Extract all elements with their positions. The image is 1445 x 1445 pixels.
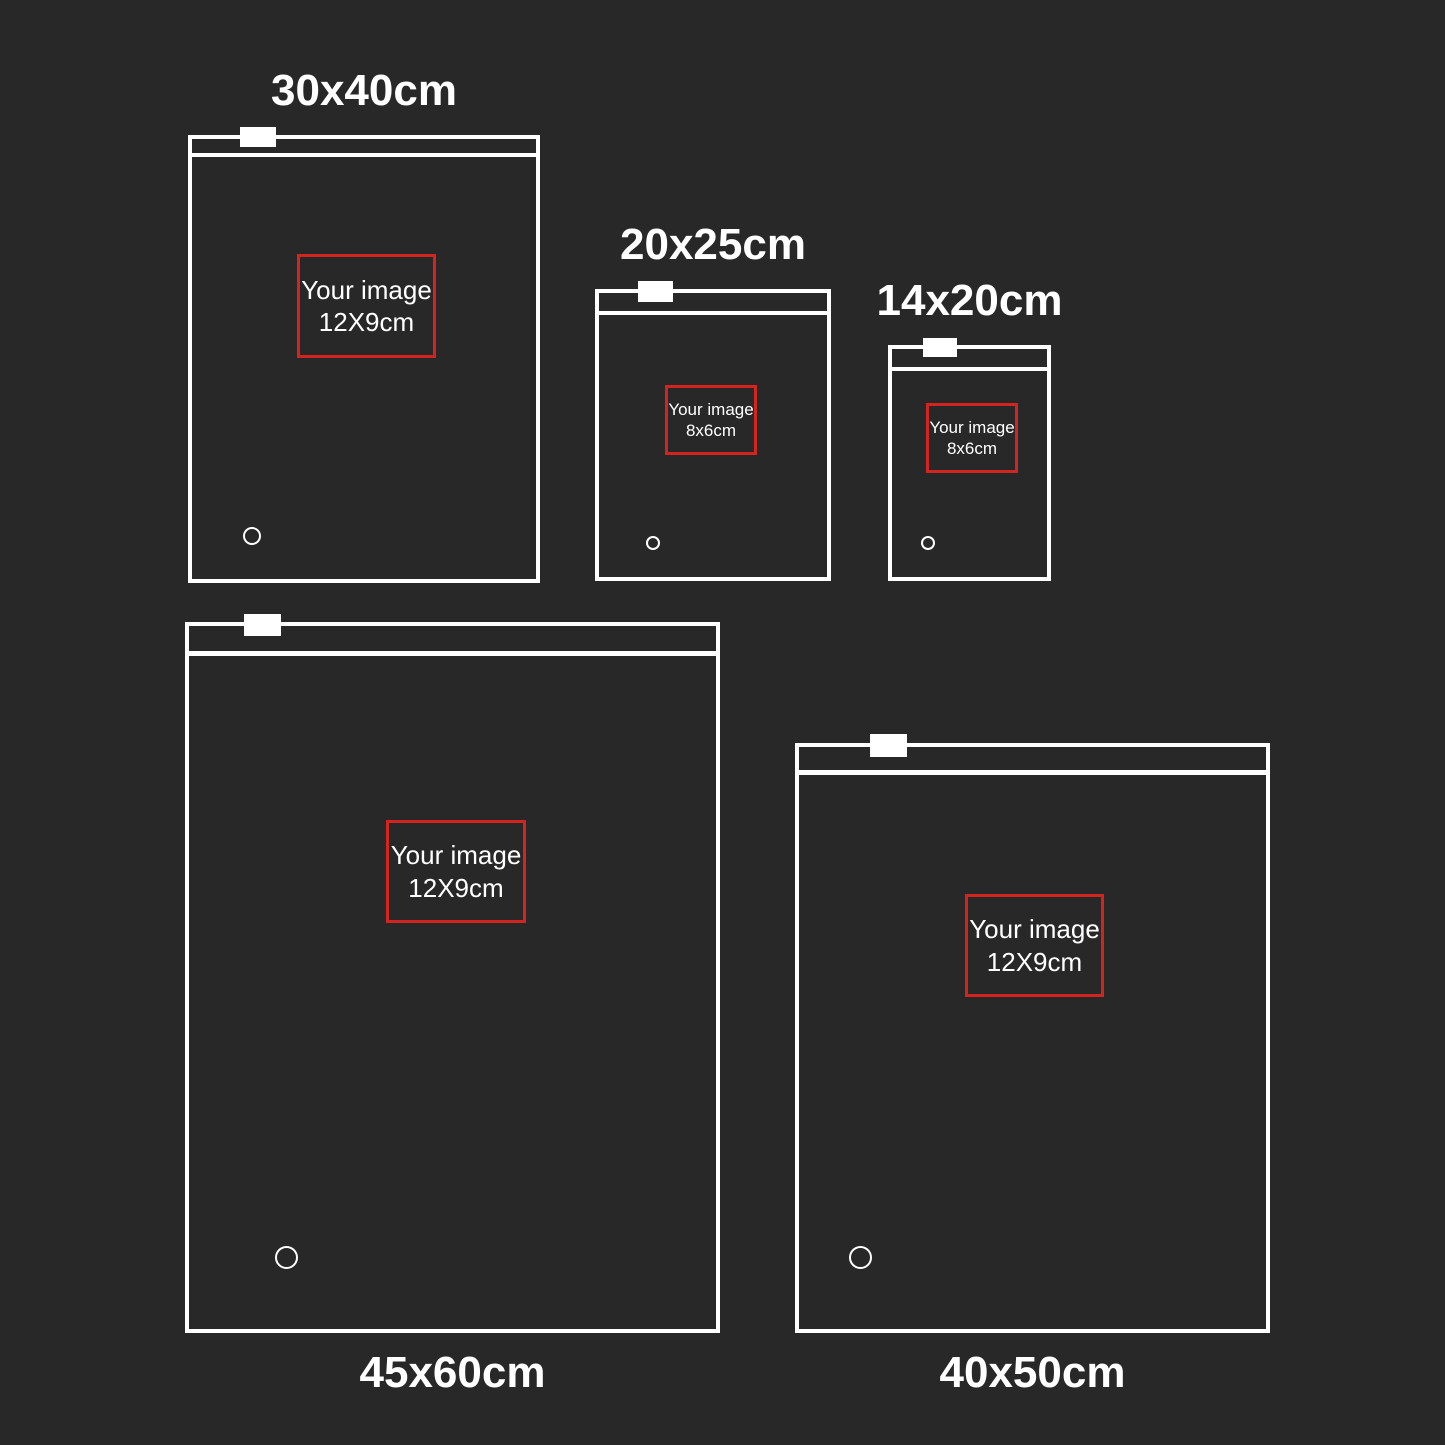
image-placeholder-box: Your image 12X9cm — [386, 820, 526, 923]
hang-hole-icon — [243, 527, 261, 545]
size-label: 45x60cm — [360, 1351, 546, 1395]
image-placeholder-line1: Your image — [391, 839, 522, 872]
zipper-track-line — [891, 367, 1048, 371]
image-placeholder-box: Your image 12X9cm — [297, 254, 436, 358]
bag-20x25cm: 20x25cm Your image 8x6cm — [595, 289, 831, 581]
image-placeholder-size: 8x6cm — [686, 420, 736, 441]
size-label: 40x50cm — [940, 1351, 1126, 1395]
image-placeholder-size: 8x6cm — [947, 438, 997, 459]
zipper-slider-icon — [870, 734, 907, 757]
hang-hole-icon — [921, 536, 935, 550]
image-placeholder-line1: Your image — [668, 399, 753, 420]
zipper-slider-icon — [923, 338, 957, 357]
image-placeholder-line1: Your image — [301, 274, 432, 307]
zipper-slider-icon — [240, 127, 276, 147]
image-placeholder-size: 12X9cm — [987, 946, 1082, 979]
hang-hole-icon — [275, 1246, 298, 1269]
hang-hole-icon — [646, 536, 660, 550]
image-placeholder-box: Your image 8x6cm — [926, 403, 1018, 473]
hang-hole-icon — [849, 1246, 872, 1269]
image-placeholder-size: 12X9cm — [319, 306, 414, 339]
image-placeholder-line1: Your image — [929, 417, 1014, 438]
size-chart-canvas: 30x40cm Your image 12X9cm 20x25cm Your i… — [0, 0, 1445, 1445]
bag-45x60cm: 45x60cm Your image 12X9cm — [185, 622, 720, 1333]
bag-14x20cm: 14x20cm Your image 8x6cm — [888, 345, 1051, 581]
image-placeholder-line1: Your image — [969, 913, 1100, 946]
zipper-track-line — [188, 651, 717, 656]
image-placeholder-box: Your image 8x6cm — [665, 385, 757, 455]
size-label: 14x20cm — [877, 279, 1063, 323]
bag-40x50cm: 40x50cm Your image 12X9cm — [795, 743, 1270, 1333]
zipper-slider-icon — [638, 281, 673, 302]
bag-30x40cm: 30x40cm Your image 12X9cm — [188, 135, 540, 583]
zipper-track-line — [798, 770, 1267, 775]
zipper-track-line — [598, 311, 828, 315]
zipper-slider-icon — [244, 614, 281, 636]
size-label: 30x40cm — [271, 69, 457, 113]
zipper-track-line — [191, 153, 537, 157]
image-placeholder-size: 12X9cm — [408, 872, 503, 905]
size-label: 20x25cm — [620, 223, 806, 267]
image-placeholder-box: Your image 12X9cm — [965, 894, 1104, 997]
